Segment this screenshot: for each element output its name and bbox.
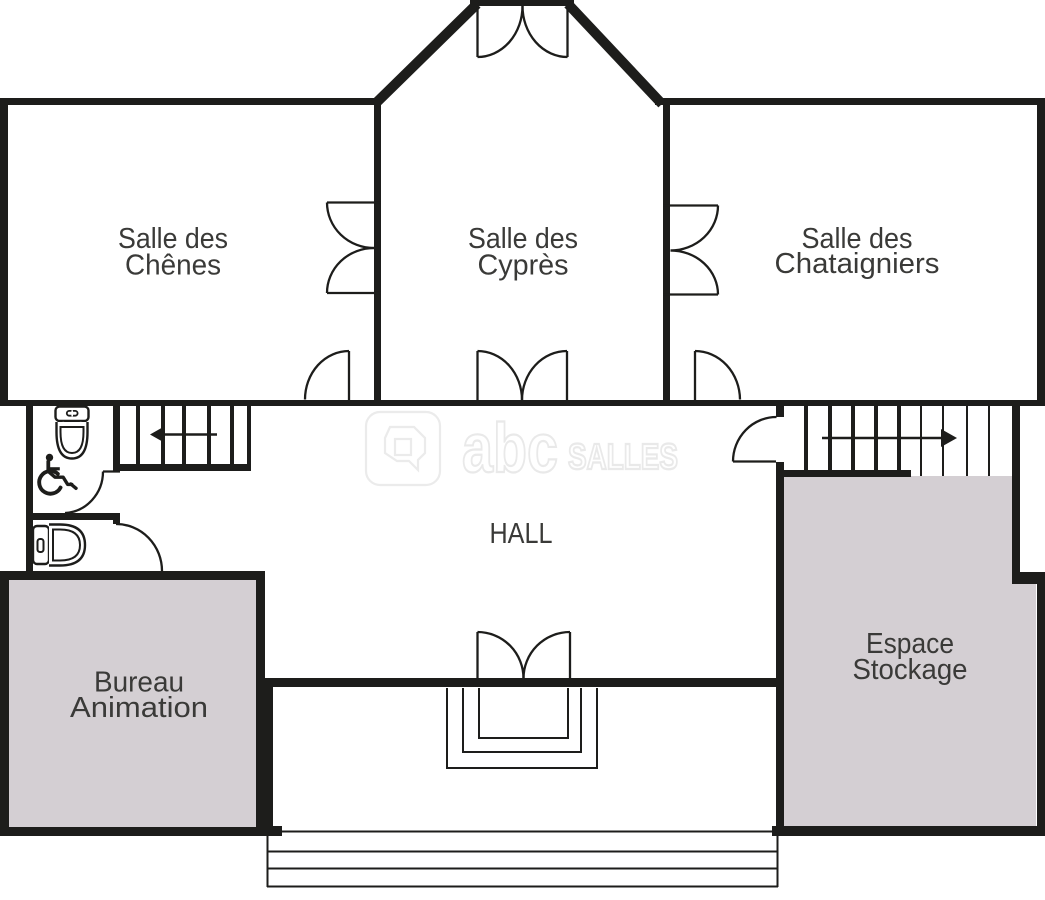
svg-text:abc: abc [462,409,558,487]
svg-text:Chênes: Chênes [125,250,221,282]
svg-text:Animation: Animation [70,692,208,724]
svg-text:Chataigniers: Chataigniers [775,248,940,280]
svg-text:HALL: HALL [490,518,553,550]
svg-text:Stockage: Stockage [853,654,968,686]
svg-text:Cyprès: Cyprès [478,250,569,282]
svg-text:SALLES: SALLES [568,436,678,477]
